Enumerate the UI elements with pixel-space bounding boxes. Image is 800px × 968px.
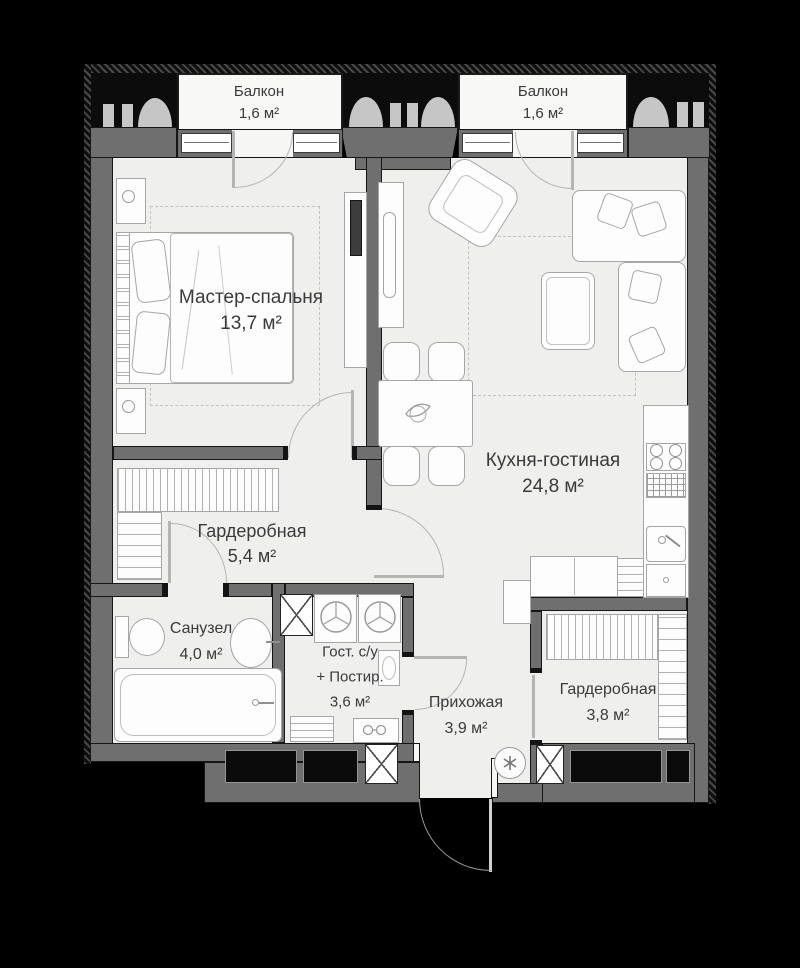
ventilation-shaft-icon: [280, 594, 313, 636]
room-label-balcony-right: Балкон 1,6 м²: [518, 81, 568, 125]
wall-left: [90, 157, 113, 744]
pillow: [131, 310, 171, 375]
room-area: 13,7 м²: [179, 311, 323, 337]
counter-divider: [574, 558, 575, 595]
room-name: Санузел: [170, 616, 232, 642]
wall-cap: [530, 668, 542, 673]
wall-cap: [402, 652, 414, 657]
bathtub-drain-icon: [252, 699, 259, 706]
room-label-wardrobe-54: Гардеробная 5,4 м²: [198, 519, 307, 569]
tv-living: [383, 212, 396, 298]
window: [577, 133, 624, 153]
wardrobe38-hanger-rack: [546, 614, 658, 660]
burner-icon: [669, 444, 682, 457]
service-shaft: [303, 750, 358, 783]
wardrobe38-shelves: [658, 614, 687, 740]
room-name: Балкон: [234, 81, 284, 103]
sink-faucet-icon: [266, 641, 280, 643]
wall-cap: [223, 583, 228, 597]
guest-wc-sink-bowl: [382, 656, 396, 680]
drying-rack-glyph: [358, 721, 394, 739]
hall-cabinet: [503, 580, 531, 624]
burner-icon: [669, 457, 682, 470]
room-area: 1,6 м²: [234, 103, 284, 125]
oven: [646, 473, 686, 498]
room-label-master-bedroom: Мастер-спальня 13,7 м²: [179, 285, 323, 337]
wall-cap: [402, 710, 414, 715]
window: [181, 133, 232, 153]
wall-band-left: [90, 127, 177, 158]
wall-band-right: [628, 127, 710, 158]
room-area: 1,6 м²: [518, 103, 568, 125]
facade-merlon: [693, 102, 704, 127]
dishwasher: [617, 558, 644, 597]
table-plant-icon: [398, 392, 438, 432]
stove-burners: [647, 444, 685, 470]
band-south-mid: [492, 783, 543, 803]
room-label-guest-wc: Гост. с/у + Постир. 3,6 м²: [316, 640, 383, 715]
fan-icon-glyph: [502, 755, 518, 771]
wall-wardrobe38-west-a: [530, 611, 542, 673]
entrance-jamb-left: [413, 743, 420, 762]
ventilation-shaft-icon: [536, 745, 564, 784]
wall-right: [687, 157, 709, 803]
lamp-icon: [122, 400, 135, 413]
room-name: Гардеробная: [560, 677, 657, 703]
facade-merlon: [677, 102, 688, 127]
room-name: Гардеробная: [198, 519, 307, 544]
wall-cap: [366, 505, 382, 510]
bed-headboard: [116, 232, 130, 384]
room-name: Кухня-гостиная: [486, 448, 620, 474]
room-name: Балкон: [518, 81, 568, 103]
wall-bath-north-a: [90, 583, 163, 597]
dining-chair: [383, 342, 420, 382]
wall-cap: [352, 446, 357, 460]
floor-plan: Балкон 1,6 м² Балкон 1,6 м² Мастер-спаль…: [0, 0, 800, 968]
lamp-icon: [122, 190, 135, 203]
room-label-kitchen-living: Кухня-гостиная 24,8 м²: [486, 448, 620, 500]
room-area: 5,4 м²: [198, 544, 307, 569]
dining-chair: [383, 446, 420, 486]
room-name-line2: + Постир.: [316, 665, 383, 690]
service-shaft: [225, 750, 297, 783]
wardrobe-shelves: [117, 512, 162, 580]
burner-icon: [650, 457, 663, 470]
facade-merlon: [122, 104, 133, 127]
washing-machine-icon: [318, 599, 354, 635]
room-name: Гост. с/у: [316, 640, 383, 665]
dining-chair: [428, 446, 465, 486]
room-name: Прихожая: [429, 690, 503, 716]
tv-icon: [350, 200, 362, 256]
cabinet-knob-icon: [663, 577, 669, 583]
burner-icon: [650, 444, 663, 457]
kitchen-sink: [646, 526, 686, 562]
wall-guestwc-east-b: [402, 710, 414, 744]
service-shaft: [570, 750, 662, 783]
room-area: 3,6 м²: [316, 690, 383, 715]
coffee-table-top: [546, 277, 590, 345]
wardrobe54-door-leaf: [374, 575, 444, 578]
entrance-door-swing: [419, 799, 491, 871]
washing-machine-icon: [362, 599, 398, 635]
window: [293, 133, 340, 153]
facade-merlon: [407, 103, 418, 127]
wall-kitchen-south: [530, 597, 687, 611]
ventilation-shaft-icon: [365, 744, 398, 784]
toilet-bowl: [129, 618, 165, 656]
toilet-tank: [115, 616, 129, 658]
room-label-balcony-left: Балкон 1,6 м²: [234, 81, 284, 125]
wardrobe-hanger-rack: [117, 468, 279, 512]
room-area: 4,0 м²: [170, 642, 232, 668]
room-name: Мастер-спальня: [179, 285, 323, 311]
wall-cap: [163, 583, 168, 597]
room-area: 24,8 м²: [486, 474, 620, 500]
exterior-hatch-right: [709, 64, 716, 804]
exterior-hatch-top: [84, 64, 716, 73]
room-label-bathroom: Санузел 4,0 м²: [170, 616, 232, 668]
room-label-wardrobe-38: Гардеробная 3,8 м²: [560, 677, 657, 729]
towel-dryer-icon: [290, 716, 334, 742]
room-area: 3,8 м²: [560, 703, 657, 729]
dining-chair: [428, 342, 465, 382]
bathtub-faucet-icon: [258, 702, 274, 704]
wall-pier-mid: [341, 127, 458, 158]
wardrobe38-door-leaf: [532, 675, 535, 738]
room-label-hallway: Прихожая 3,9 м²: [429, 690, 503, 742]
service-shaft: [666, 750, 690, 783]
wall-cap: [283, 446, 288, 460]
window: [462, 133, 513, 153]
bathroom-sink: [230, 618, 272, 668]
sofa-pillow: [627, 269, 663, 305]
wall-cap: [530, 740, 542, 745]
facade-merlon: [103, 104, 114, 127]
wall-bedroom-south: [113, 446, 288, 460]
room-area: 3,9 м²: [429, 716, 503, 742]
sink-drain-icon: [658, 536, 666, 544]
facade-merlon: [390, 103, 401, 127]
entrance-threshold: [420, 743, 492, 798]
wall-guestwc-east-a: [402, 597, 414, 657]
wall-bath-north-b: [228, 583, 272, 597]
